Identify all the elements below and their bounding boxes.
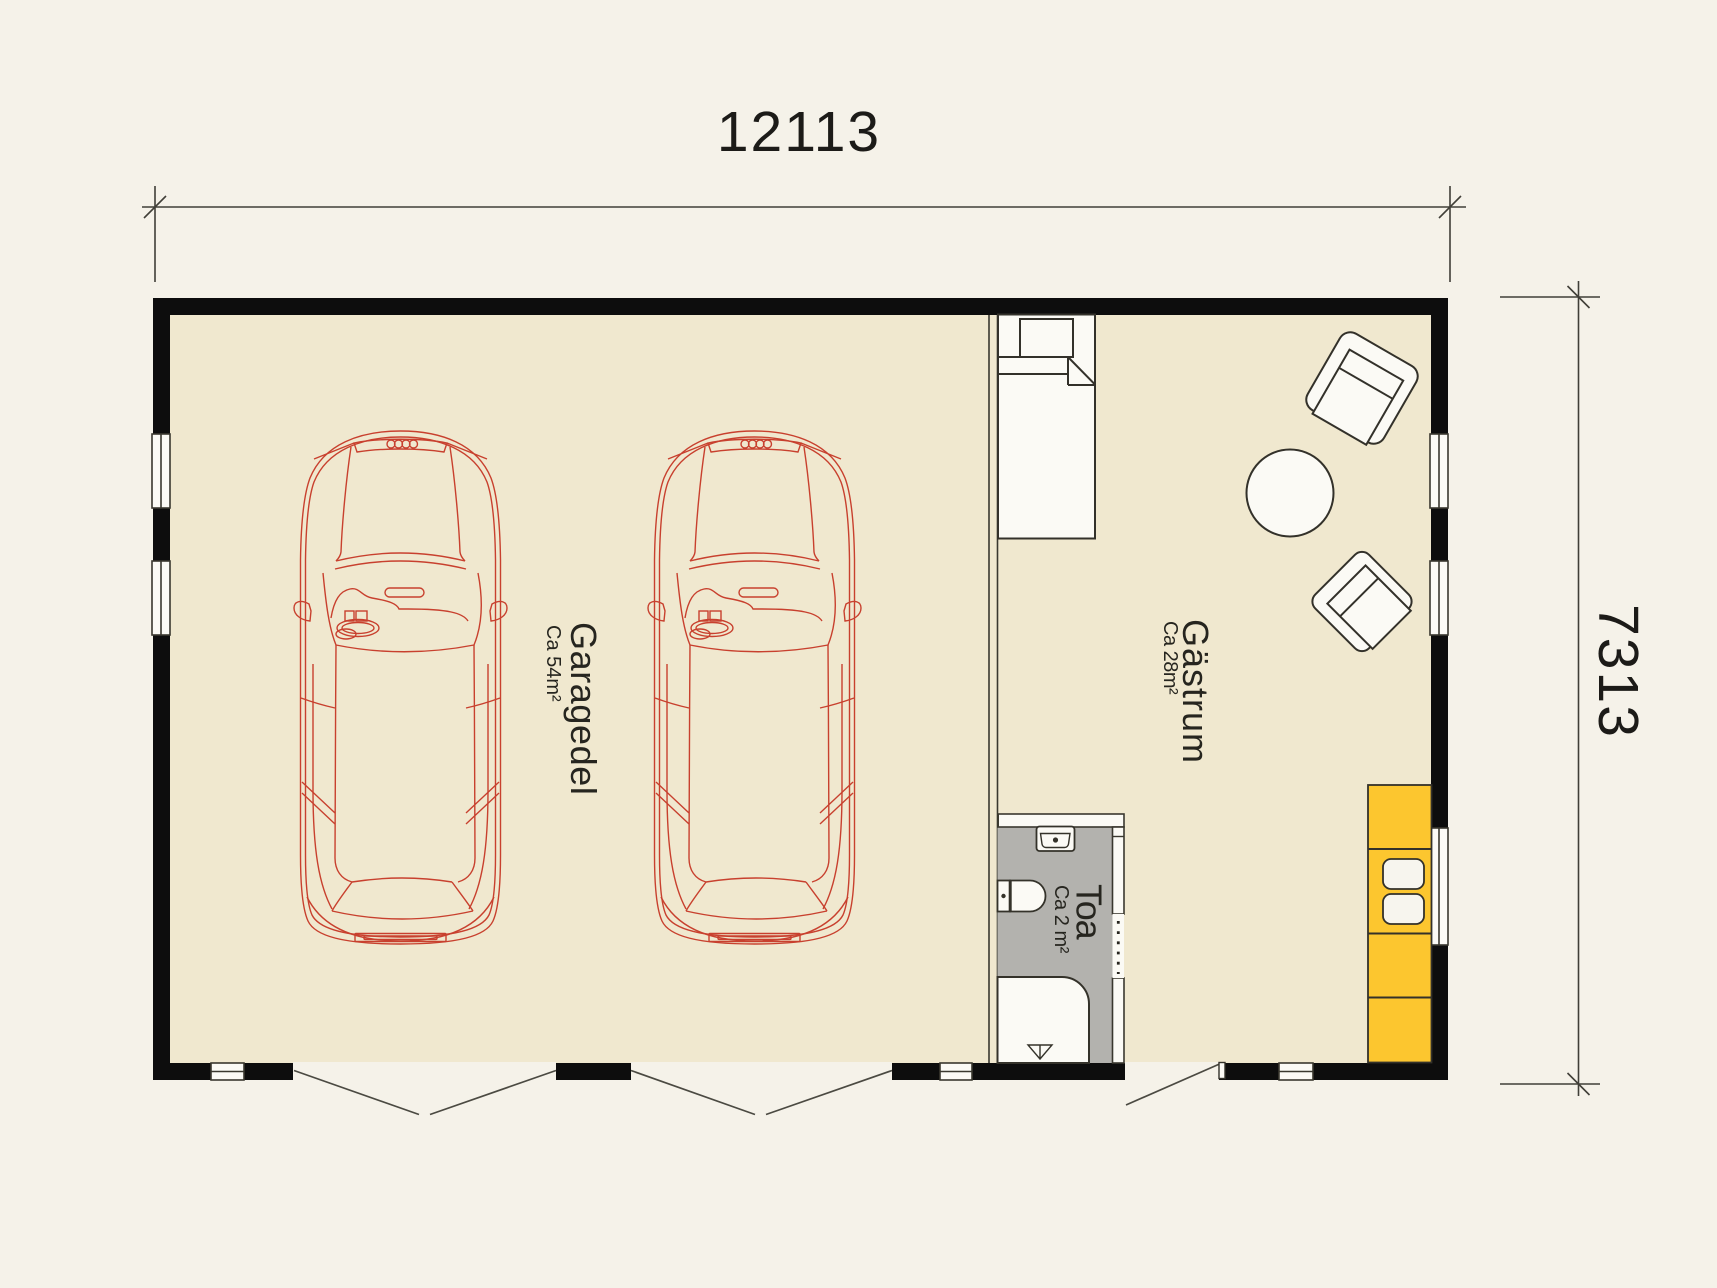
svg-text:Garagedel: Garagedel (563, 622, 604, 796)
svg-text:Toa: Toa (1069, 884, 1110, 941)
svg-text:Ca 2 m²: Ca 2 m² (1050, 885, 1072, 954)
svg-text:Ca 54m²: Ca 54m² (542, 625, 564, 702)
svg-text:7313: 7313 (1586, 604, 1650, 739)
svg-text:12113: 12113 (717, 100, 881, 164)
svg-text:Ca 28m²: Ca 28m² (1159, 621, 1181, 695)
